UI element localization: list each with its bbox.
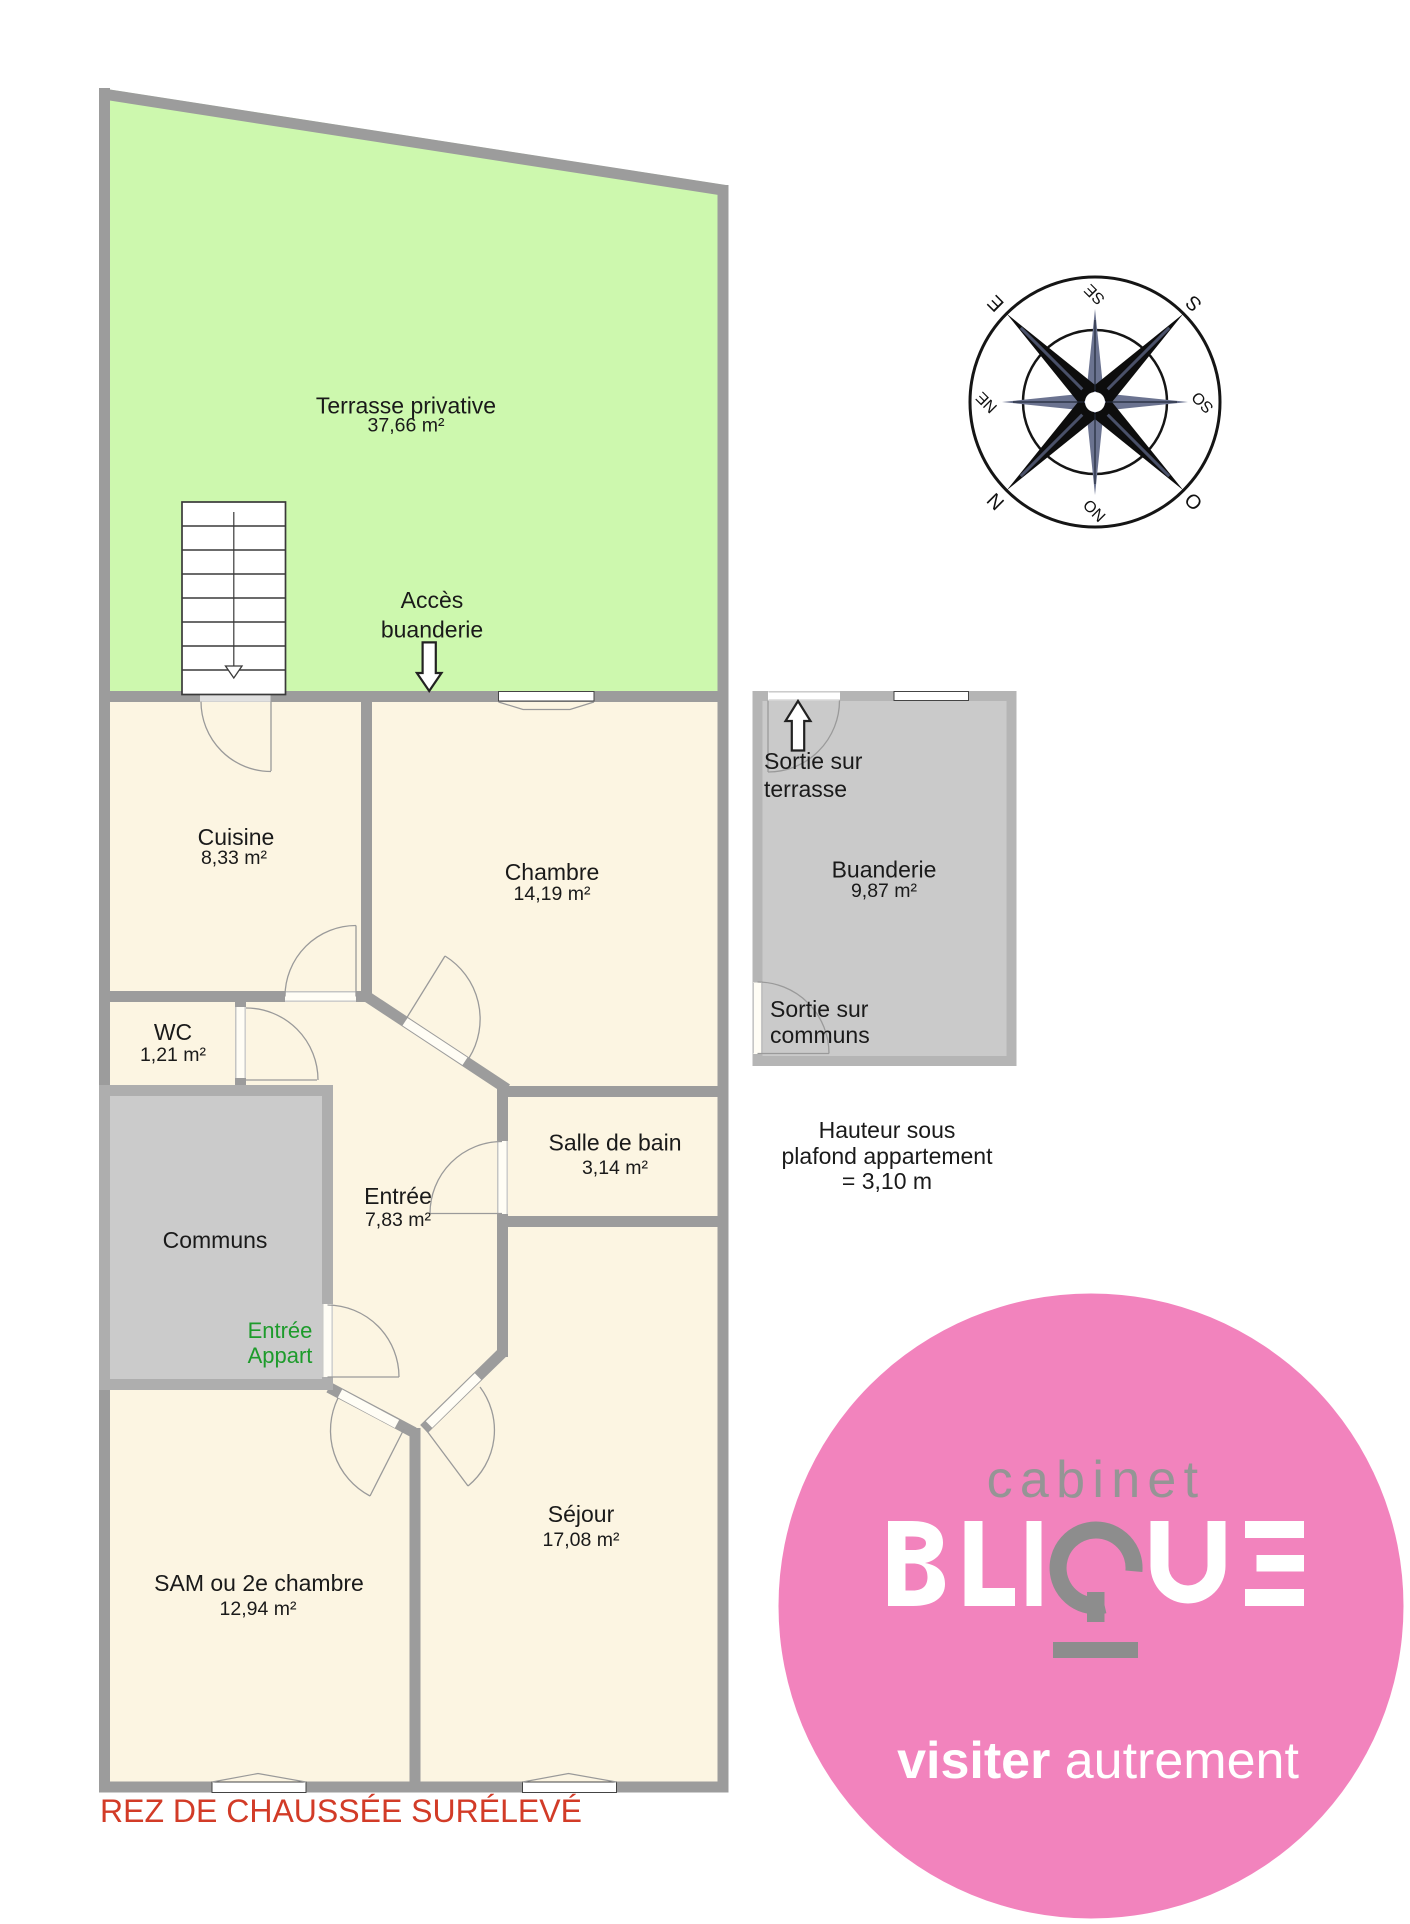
svg-text:Salle de bain: Salle de bain (549, 1130, 682, 1156)
svg-text:Communs: Communs (163, 1227, 268, 1253)
svg-text:Chambre: Chambre (505, 859, 600, 885)
svg-text:Buanderie: Buanderie (832, 857, 937, 883)
svg-text:REZ DE CHAUSSÉE SURÉLEVÉ: REZ DE CHAUSSÉE SURÉLEVÉ (100, 1793, 582, 1829)
svg-text:plafond appartement: plafond appartement (782, 1143, 994, 1169)
svg-text:7,83 m²: 7,83 m² (365, 1209, 432, 1231)
svg-text:9,87 m²: 9,87 m² (851, 880, 918, 902)
svg-text:SAM ou 2e chambre: SAM ou 2e chambre (154, 1570, 364, 1596)
svg-text:1,21 m²: 1,21 m² (140, 1044, 207, 1066)
svg-text:14,19 m²: 14,19 m² (514, 883, 591, 905)
svg-text:Sortie sur: Sortie sur (770, 996, 869, 1022)
svg-text:cabinet: cabinet (987, 1451, 1206, 1509)
svg-text:WC: WC (154, 1019, 192, 1045)
svg-text:visiter autrement: visiter autrement (897, 1732, 1299, 1790)
svg-text:37,66 m²: 37,66 m² (368, 415, 445, 437)
svg-text:Entrée: Entrée (364, 1183, 432, 1209)
svg-text:17,08 m²: 17,08 m² (543, 1529, 620, 1551)
svg-text:8,33 m²: 8,33 m² (201, 847, 268, 869)
svg-text:terrasse: terrasse (764, 776, 847, 802)
svg-text:Hauteur sous: Hauteur sous (819, 1117, 956, 1143)
svg-text:Séjour: Séjour (548, 1501, 615, 1527)
svg-text:Appart: Appart (248, 1343, 313, 1368)
svg-text:3,14 m²: 3,14 m² (582, 1157, 649, 1179)
svg-text:Accès: Accès (401, 587, 464, 613)
svg-text:Entrée: Entrée (248, 1318, 313, 1343)
svg-text:Sortie sur: Sortie sur (764, 748, 863, 774)
svg-text:= 3,10 m: = 3,10 m (842, 1168, 932, 1194)
svg-text:buanderie: buanderie (381, 617, 483, 643)
svg-text:12,94 m²: 12,94 m² (220, 1598, 297, 1620)
svg-text:communs: communs (770, 1022, 870, 1048)
